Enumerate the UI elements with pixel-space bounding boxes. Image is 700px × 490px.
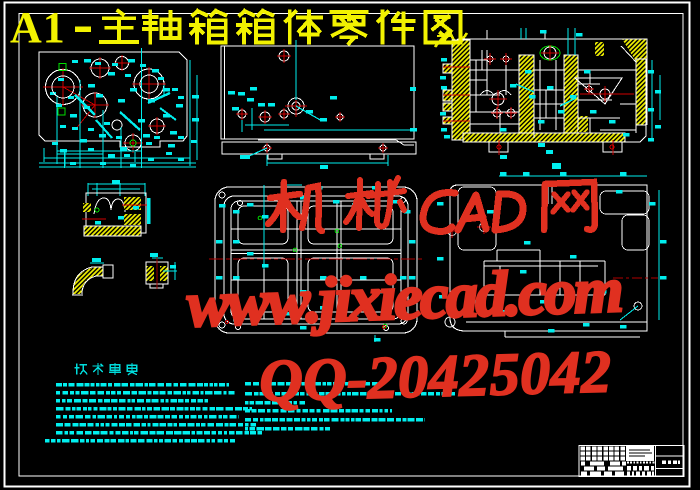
- svg-text:www.jixiecad.com: www.jixiecad.com: [186, 254, 622, 340]
- svg-text:A1: A1: [10, 3, 66, 52]
- svg-text:QQ-20425042: QQ-20425042: [259, 338, 613, 414]
